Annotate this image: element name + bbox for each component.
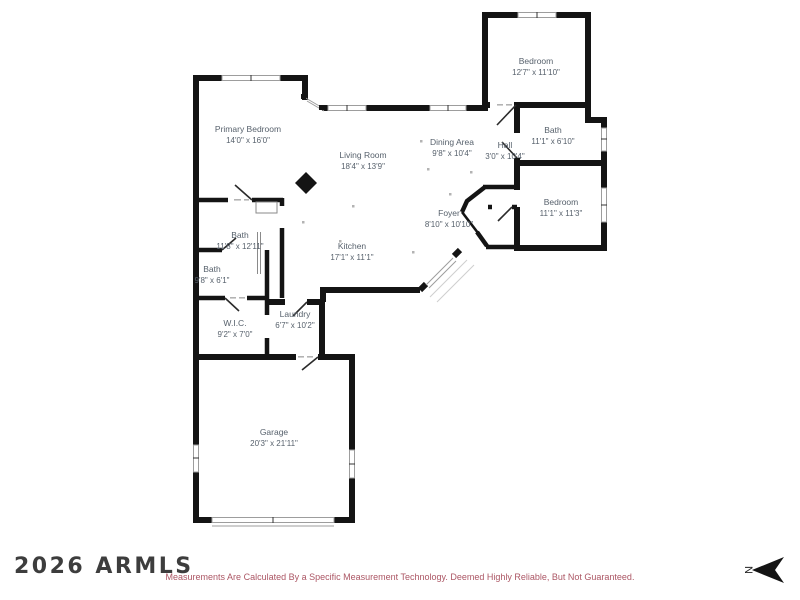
room-label-laundry: Laundry	[280, 309, 311, 319]
wic-door-leaf	[225, 298, 239, 311]
room-label-bath-main: Bath	[231, 230, 249, 240]
room-label-garage: Garage	[260, 427, 289, 437]
room-dims-primary-bedroom: 14'0" x 16'0"	[226, 136, 270, 145]
room-label-dining-area: Dining Area	[430, 137, 474, 147]
room-label-kitchen: Kitchen	[338, 241, 367, 251]
room-label-living-room: Living Room	[339, 150, 386, 160]
room-dims-foyer: 8'10" x 10'10"	[425, 220, 473, 229]
room-dims-bedroom-right: 11'1" x 11'3"	[540, 209, 583, 218]
floorplan-drawing: Bedroom 12'7" x 11'10" Bath 11'1" x 6'10…	[0, 0, 800, 600]
room-dims-wic: 9'2" x 7'0"	[218, 330, 253, 339]
garage-entry-door-leaf	[302, 357, 318, 370]
north-arrow: N	[726, 554, 790, 586]
room-dims-bath-small: 9'8" x 6'1"	[195, 276, 230, 285]
room-label-bedroom-top: Bedroom	[519, 56, 554, 66]
bath-vanity	[256, 202, 277, 213]
room-dims-hall: 3'0" x 10'4"	[485, 152, 525, 161]
bedroom2-door-leaf	[498, 207, 512, 221]
room-dims-bath-hall: 11'1" x 6'10"	[531, 137, 574, 146]
fixtures	[256, 94, 474, 302]
room-dims-garage: 20'3" x 21'11"	[250, 439, 298, 448]
room-label-bedroom-right: Bedroom	[544, 197, 579, 207]
disclaimer-text: Measurements Are Calculated By a Specifi…	[0, 572, 800, 582]
windows	[194, 13, 607, 527]
angled-door-post	[301, 94, 306, 99]
room-dims-laundry: 6'7" x 10'2"	[275, 321, 315, 330]
room-label-primary-bedroom: Primary Bedroom	[215, 124, 281, 134]
room-label-hall: Hall	[498, 140, 513, 150]
bedroom-door-leaf	[497, 105, 516, 125]
room-labels: Bedroom 12'7" x 11'10" Bath 11'1" x 6'10…	[195, 56, 583, 448]
room-dims-living-room: 18'4" x 13'9"	[341, 162, 385, 171]
room-label-wic: W.I.C.	[223, 318, 246, 328]
room-label-bath-small: Bath	[203, 264, 221, 274]
angled-door-post	[319, 105, 324, 110]
corner-fireplace	[295, 172, 317, 194]
room-label-bath-hall: Bath	[544, 125, 562, 135]
floorplan-page: Bedroom 12'7" x 11'10" Bath 11'1" x 6'10…	[0, 0, 800, 600]
shower-glass	[258, 232, 261, 274]
north-arrowhead-icon	[752, 557, 784, 583]
primary-bath-door-leaf	[235, 185, 252, 200]
north-arrow-graphic: N	[726, 554, 790, 586]
sliding-door-glass	[426, 258, 456, 288]
room-dims-dining-area: 9'8" x 10'4"	[432, 149, 472, 158]
room-dims-bath-main: 11'8" x 12'11"	[216, 242, 263, 251]
room-dims-bedroom-top: 12'7" x 11'10"	[512, 68, 560, 77]
room-label-foyer: Foyer	[438, 208, 460, 218]
room-dims-kitchen: 17'1" x 11'1"	[330, 253, 373, 262]
